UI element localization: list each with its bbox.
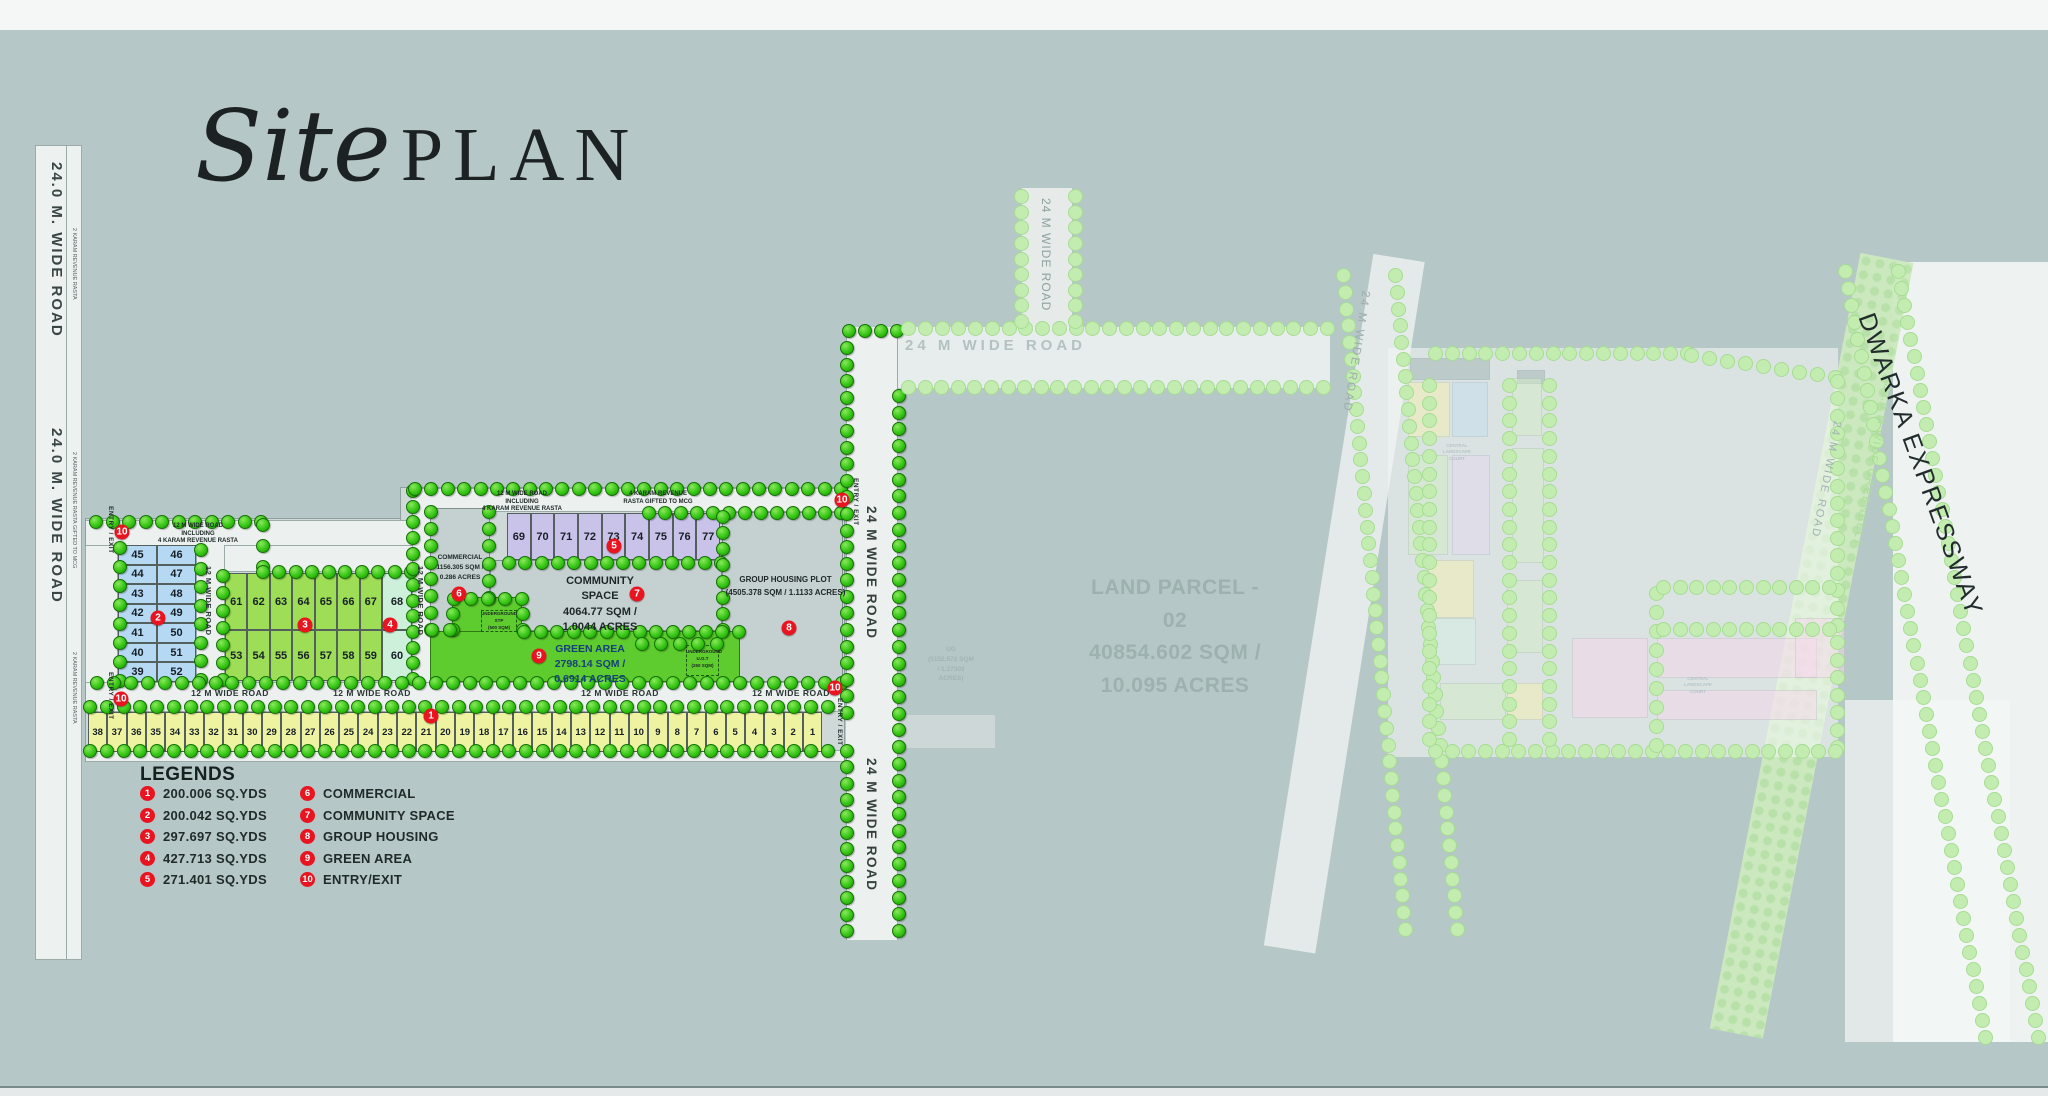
tree-icon (1830, 688, 1845, 703)
tree-icon (268, 700, 282, 714)
tree-icon (1528, 744, 1543, 759)
tree-icon (1542, 502, 1557, 517)
tree-icon (141, 676, 155, 690)
tree-icon (100, 744, 114, 758)
tree-icon (892, 473, 906, 487)
tree-icon (892, 774, 906, 788)
tree-icon (1186, 321, 1201, 336)
tree-icon (1068, 267, 1083, 282)
tree-icon (802, 506, 816, 520)
tree-icon (1978, 1030, 1993, 1045)
legend-item: 9GREEN AREA (300, 851, 412, 866)
road-12m-including-note-2: 12 M WIDE ROAD INCLUDING4 KARAM REVENUE … (480, 491, 564, 514)
tree-icon (1941, 826, 1956, 841)
tree-icon (90, 676, 104, 690)
tree-icon (113, 636, 127, 650)
road-12m-label: 12 M WIDE ROAD (317, 688, 427, 698)
tree-icon (1502, 608, 1517, 623)
tree-icon (1542, 732, 1557, 747)
left-road-label-2: 24.0 M. WIDE ROAD (48, 428, 65, 604)
tree-icon (1316, 380, 1331, 395)
tree-icon (892, 623, 906, 637)
tree-icon (1972, 707, 1987, 722)
tree-icon (301, 744, 315, 758)
tree-icon (1422, 396, 1437, 411)
tree-icon (840, 908, 854, 922)
tree-icon (113, 617, 127, 631)
tree-icon (1068, 220, 1083, 235)
tree-icon (1387, 805, 1402, 820)
tree-icon (1975, 1013, 1990, 1028)
tree-icon (892, 590, 906, 604)
tree-icon (1739, 622, 1754, 637)
tree-icon (2003, 877, 2018, 892)
tree-icon (515, 592, 529, 606)
legend-marker-icon: 10 (300, 872, 315, 887)
tree-icon (1963, 656, 1978, 671)
tree-icon (1649, 662, 1664, 677)
tree-icon (1339, 302, 1354, 317)
tree-icon (1167, 380, 1182, 395)
tree-icon (1369, 620, 1384, 635)
tree-icon (1391, 302, 1406, 317)
legend-item: 4427.713 SQ.YDS (140, 851, 267, 866)
tree-icon (1035, 321, 1050, 336)
tree-icon (425, 623, 439, 637)
tree-icon (892, 740, 906, 754)
tree-icon (256, 565, 270, 579)
tree-icon (1997, 843, 2012, 858)
tree-icon (551, 556, 565, 570)
tree-icon (1445, 346, 1460, 361)
adjacent-block (1452, 382, 1488, 437)
tree-icon (754, 700, 768, 714)
tree-icon (1052, 321, 1067, 336)
tree-icon (1882, 502, 1897, 517)
tree-icon (1925, 741, 1940, 756)
tree-icon (355, 565, 369, 579)
tree-icon (406, 641, 420, 655)
plot-67: 67 (360, 573, 382, 630)
tree-icon (498, 592, 512, 606)
plot-71: 71 (554, 513, 578, 560)
tree-icon (1878, 485, 1893, 500)
tree-icon (1542, 608, 1557, 623)
tree-icon (1502, 679, 1517, 694)
tree-icon (1068, 298, 1083, 313)
tree-icon (446, 607, 460, 621)
tree-icon (402, 700, 416, 714)
tree-icon (1381, 738, 1396, 753)
tree-icon (238, 515, 252, 529)
tree-icon (892, 606, 906, 620)
tree-icon (703, 482, 717, 496)
tree-icon (840, 391, 854, 405)
tree-icon (194, 636, 208, 650)
tree-icon (443, 623, 457, 637)
tree-icon (1068, 283, 1083, 298)
tree-icon (1546, 346, 1561, 361)
tree-icon (406, 547, 420, 561)
tree-icon (553, 744, 567, 758)
tree-icon (2022, 979, 2037, 994)
tree-icon (752, 482, 766, 496)
tree-icon (113, 579, 127, 593)
tree-icon (1969, 690, 1984, 705)
tree-icon (1478, 744, 1493, 759)
tree-icon (605, 482, 619, 496)
tree-icon (1613, 346, 1628, 361)
tree-icon (1436, 771, 1451, 786)
tree-icon (892, 422, 906, 436)
tree-icon (600, 556, 614, 570)
tree-icon (1447, 888, 1462, 903)
plot-50: 50 (157, 623, 196, 643)
marker-10: 10 (835, 493, 850, 508)
legend-item: 5271.401 SQ.YDS (140, 872, 267, 887)
tree-icon (536, 700, 550, 714)
adjacent-block (1657, 638, 1817, 678)
tree-icon (967, 380, 982, 395)
tree-icon (486, 700, 500, 714)
plot-72: 72 (578, 513, 602, 560)
legend-marker-icon: 3 (140, 829, 155, 844)
tree-icon (1385, 788, 1400, 803)
tree-icon (424, 539, 438, 553)
tree-icon (216, 656, 230, 670)
tree-icon (1630, 346, 1645, 361)
tree-icon (1502, 697, 1517, 712)
tree-icon (150, 744, 164, 758)
tree-icon (1119, 321, 1134, 336)
tree-icon (1266, 380, 1281, 395)
tree-icon (1136, 321, 1151, 336)
tree-icon (289, 565, 303, 579)
tree-icon (1706, 580, 1721, 595)
tree-icon (738, 506, 752, 520)
tree-icon (1822, 622, 1837, 637)
marker-10: 10 (828, 681, 843, 696)
tree-icon (486, 744, 500, 758)
tree-icon (1379, 721, 1394, 736)
site-plan-canvas: Site PLAN (0, 0, 2048, 1096)
tree-icon (2031, 1030, 2046, 1045)
tree-icon (113, 655, 127, 669)
title-script-word: Site (195, 98, 391, 196)
tree-icon (1358, 503, 1373, 518)
tree-icon (452, 744, 466, 758)
tree-icon (1745, 744, 1760, 759)
tree-icon (892, 539, 906, 553)
tree-icon (1966, 673, 1981, 688)
rasta-2karam-mcg-label: 2 KARAM REVENUE RASTA GIFTED TO MCG (71, 452, 77, 568)
tree-icon (1984, 775, 1999, 790)
entry-exit-label: ENTRY / EXIT (852, 478, 859, 526)
tree-icon (892, 757, 906, 771)
tree-icon (754, 744, 768, 758)
tree-icon (1673, 622, 1688, 637)
tree-icon (1068, 205, 1083, 220)
tree-icon (683, 676, 697, 690)
tree-icon (1978, 741, 1993, 756)
tree-icon (1422, 644, 1437, 659)
tree-icon (1014, 205, 1029, 220)
tree-icon (1542, 520, 1557, 535)
plot-55: 55 (270, 630, 292, 681)
east-road-label-1: 24 M WIDE ROAD (864, 506, 879, 640)
tree-icon (1542, 555, 1557, 570)
tree-icon (892, 857, 906, 871)
tree-icon (892, 657, 906, 671)
tree-icon (318, 700, 332, 714)
tree-icon (1396, 352, 1411, 367)
tree-icon (687, 700, 701, 714)
tree-icon (463, 676, 477, 690)
tree-icon (1739, 580, 1754, 595)
tree-icon (251, 744, 265, 758)
green-area-label: GREEN AREA2798.14 SQM /0.6914 ACRES (540, 642, 640, 688)
tree-icon (603, 700, 617, 714)
tree-icon (1966, 962, 1981, 977)
tree-icon (2028, 1013, 2043, 1028)
road-12m-including-note-1: 12 M WIDE ROAD INCLUDING4 KARAM REVENUE … (157, 523, 239, 546)
tree-icon (216, 604, 230, 618)
tree-icon (1384, 771, 1399, 786)
tree-icon (1404, 436, 1419, 451)
tree-icon (1975, 724, 1990, 739)
tree-icon (858, 324, 872, 338)
tree-icon (670, 744, 684, 758)
tree-icon (1678, 744, 1693, 759)
tree-icon (516, 607, 530, 621)
tree-icon (892, 556, 906, 570)
tree-icon (1684, 348, 1699, 363)
tree-icon (892, 807, 906, 821)
tree-icon (1944, 843, 1959, 858)
legend-marker-icon: 7 (300, 808, 315, 823)
tree-icon (1422, 626, 1437, 641)
tree-icon (83, 744, 97, 758)
tree-icon (892, 790, 906, 804)
tree-icon (1649, 719, 1664, 734)
tree-icon (698, 556, 712, 570)
tree-icon (1068, 236, 1083, 251)
tree-icon (2006, 894, 2021, 909)
tree-icon (785, 482, 799, 496)
tree-icon (1357, 486, 1372, 501)
tree-icon (771, 700, 785, 714)
page-title: Site PLAN (195, 98, 639, 196)
tree-icon (1393, 318, 1408, 333)
tree-icon (1373, 654, 1388, 669)
tree-icon (2025, 996, 2040, 1011)
tree-icon (1299, 380, 1314, 395)
legend-item: 7COMMUNITY SPACE (300, 808, 455, 823)
tree-icon (1365, 570, 1380, 585)
plot-51: 51 (157, 643, 196, 663)
tree-icon (620, 700, 634, 714)
tree-icon (1216, 380, 1231, 395)
plot-47: 47 (157, 565, 196, 585)
tree-icon (840, 826, 854, 840)
tree-icon (690, 506, 704, 520)
tree-icon (1720, 354, 1735, 369)
tree-icon (1068, 189, 1083, 204)
adjacent-block (1572, 638, 1648, 718)
road-24m-east-crossing (846, 714, 898, 747)
tree-icon (371, 565, 385, 579)
stp-label: UNDERGROUNDSTP(500 SQM) (480, 611, 518, 631)
tree-icon (673, 637, 687, 651)
tree-icon (1338, 285, 1353, 300)
tree-icon (1778, 744, 1793, 759)
tree-icon (1450, 922, 1465, 937)
tree-icon (1649, 738, 1664, 753)
tree-icon (642, 506, 656, 520)
adjacent-block (1452, 455, 1490, 555)
tree-icon (892, 707, 906, 721)
plot-75: 75 (649, 513, 673, 560)
tree-icon (935, 321, 950, 336)
tree-icon (1774, 362, 1789, 377)
tree-icon (1395, 888, 1410, 903)
tree-icon (1398, 922, 1413, 937)
marker-1: 1 (424, 709, 439, 724)
tree-icon (1502, 732, 1517, 747)
tree-icon (1922, 724, 1937, 739)
landscape-court-label-2: CENTRAL LANDSCAPECOURT (1674, 676, 1722, 695)
tree-icon (840, 924, 854, 938)
tree-icon (113, 560, 127, 574)
tree-icon (1649, 643, 1664, 658)
plot-58: 58 (337, 630, 359, 681)
tree-icon (786, 506, 800, 520)
tree-icon (892, 874, 906, 888)
tree-icon (572, 482, 586, 496)
tree-icon (1512, 346, 1527, 361)
road-12m-vertical-label-1: 12 M WIDE ROAD (204, 566, 213, 636)
tree-icon (649, 556, 663, 570)
tree-icon (951, 380, 966, 395)
tree-icon (818, 506, 832, 520)
rasta-4karam-note: 4 KARAM REVENUERASTA GIFTED TO MCG (622, 491, 694, 506)
tree-icon (584, 556, 598, 570)
marker-3: 3 (298, 618, 313, 633)
tree-icon (1595, 744, 1610, 759)
tree-icon (216, 569, 230, 583)
tree-icon (704, 700, 718, 714)
tree-icon (441, 482, 455, 496)
tree-icon (1981, 758, 1996, 773)
tree-icon (1994, 826, 2009, 841)
tree-icon (670, 700, 684, 714)
tree-icon (1953, 894, 1968, 909)
tree-icon (1336, 268, 1351, 283)
tree-icon (1100, 380, 1115, 395)
tree-icon (1068, 252, 1083, 267)
tree-icon (1422, 732, 1437, 747)
legend-item: 10ENTRY/EXIT (300, 872, 402, 887)
plot-76: 76 (673, 513, 697, 560)
entry-exit-label: ENTRY / EXIT (836, 698, 843, 746)
tree-icon (424, 522, 438, 536)
tree-icon (83, 700, 97, 714)
tree-icon (1542, 396, 1557, 411)
tree-icon (840, 557, 854, 571)
tree-icon (1442, 838, 1457, 853)
plot-62: 62 (247, 573, 269, 630)
tree-icon (1542, 449, 1557, 464)
tree-icon (1789, 622, 1804, 637)
legend-marker-icon: 9 (300, 851, 315, 866)
tree-icon (113, 541, 127, 555)
tree-icon (1502, 644, 1517, 659)
tree-icon (1502, 520, 1517, 535)
east-road-label-2: 24 M WIDE ROAD (864, 758, 879, 892)
legend-marker-icon: 2 (140, 808, 155, 823)
tree-icon (1830, 670, 1845, 685)
tree-icon (256, 518, 270, 532)
tree-icon (1830, 723, 1845, 738)
tree-icon (429, 676, 443, 690)
tree-icon (1445, 744, 1460, 759)
tree-icon (700, 676, 714, 690)
legend-item: 2200.042 SQ.YDS (140, 808, 267, 823)
tree-icon (892, 506, 906, 520)
tree-icon (502, 556, 516, 570)
legend-item: 1200.006 SQ.YDS (140, 786, 267, 801)
tree-icon (1392, 855, 1407, 870)
tree-icon (1542, 467, 1557, 482)
tree-icon (818, 482, 832, 496)
plot-59: 59 (360, 630, 382, 681)
tree-icon (1422, 608, 1437, 623)
tree-icon (406, 531, 420, 545)
tree-icon (1422, 555, 1437, 570)
marker-8: 8 (782, 621, 797, 636)
tree-icon (892, 673, 906, 687)
tree-icon (732, 625, 746, 639)
tree-icon (1756, 622, 1771, 637)
tree-icon (1440, 821, 1455, 836)
tree-icon (665, 556, 679, 570)
tree-icon (452, 700, 466, 714)
tree-icon (1422, 679, 1437, 694)
tree-icon (771, 744, 785, 758)
left-road-label-1: 24.0 M. WIDE ROAD (48, 162, 65, 338)
tree-icon (1050, 380, 1065, 395)
tree-icon (1398, 369, 1413, 384)
tree-icon (1422, 378, 1437, 393)
adjacent-block (1440, 683, 1506, 720)
tree-icon (1830, 496, 1845, 511)
tree-icon (687, 744, 701, 758)
tree-icon (1649, 605, 1664, 620)
tree-icon (1702, 351, 1717, 366)
plot-56: 56 (292, 630, 314, 681)
tree-icon (388, 565, 402, 579)
tree-icon (1363, 553, 1378, 568)
group-housing-label: GROUP HOUSING PLOT(4505.378 SQM / 1.1133… (723, 574, 848, 600)
tree-icon (535, 556, 549, 570)
tree-icon (840, 424, 854, 438)
tree-icon (1017, 380, 1032, 395)
tree-icon (519, 700, 533, 714)
tree-icon (1001, 380, 1016, 395)
tree-icon (892, 489, 906, 503)
tree-icon (840, 640, 854, 654)
tree-icon (1830, 601, 1845, 616)
